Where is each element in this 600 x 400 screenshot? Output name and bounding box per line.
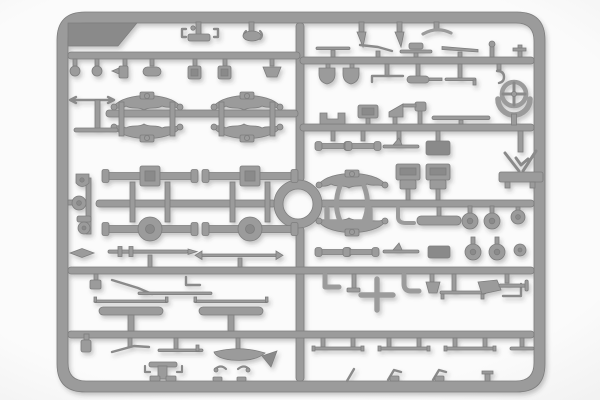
top-bracket-parts (182, 22, 262, 41)
small-angle-parts (347, 369, 493, 381)
moulding-gate-patch (68, 23, 137, 46)
shield-bracket-parts (319, 64, 504, 85)
sprue-photo (0, 0, 600, 400)
fender-and-rod-parts (81, 334, 277, 367)
thin-linkage-parts (90, 274, 212, 295)
caster-and-disc-parts (68, 174, 91, 234)
tie-rods (70, 247, 283, 268)
sprue-frame-group (57, 12, 545, 392)
running-boards (94, 297, 268, 331)
sprue-drawing (0, 0, 600, 400)
seat-boxes (396, 164, 450, 200)
top-pin-parts (357, 22, 451, 47)
pedestal-and-hook-parts (145, 362, 250, 381)
cross-frame-and-shovel (325, 274, 528, 310)
steering-wheel (498, 82, 530, 125)
bracket-and-box-parts (320, 102, 490, 124)
centre-ring (274, 180, 322, 228)
runners (68, 23, 534, 381)
small-fittings-row (70, 59, 281, 79)
thin-lever-parts (316, 41, 526, 57)
stub-rod-parts (312, 338, 534, 351)
